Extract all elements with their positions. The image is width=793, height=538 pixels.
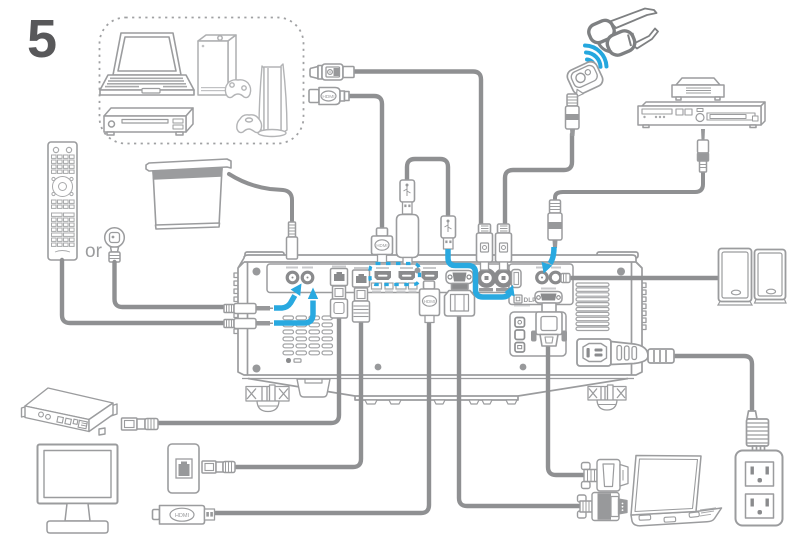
svg-text:HDMI: HDMI: [376, 243, 387, 248]
svg-text:or: or: [85, 241, 103, 262]
svg-text:HDMI: HDMI: [424, 299, 435, 304]
svg-text:HDMI: HDMI: [175, 513, 190, 519]
svg-text:DLP: DLP: [524, 297, 538, 304]
svg-text:5: 5: [27, 9, 57, 69]
svg-text:HDMI: HDMI: [322, 94, 334, 100]
